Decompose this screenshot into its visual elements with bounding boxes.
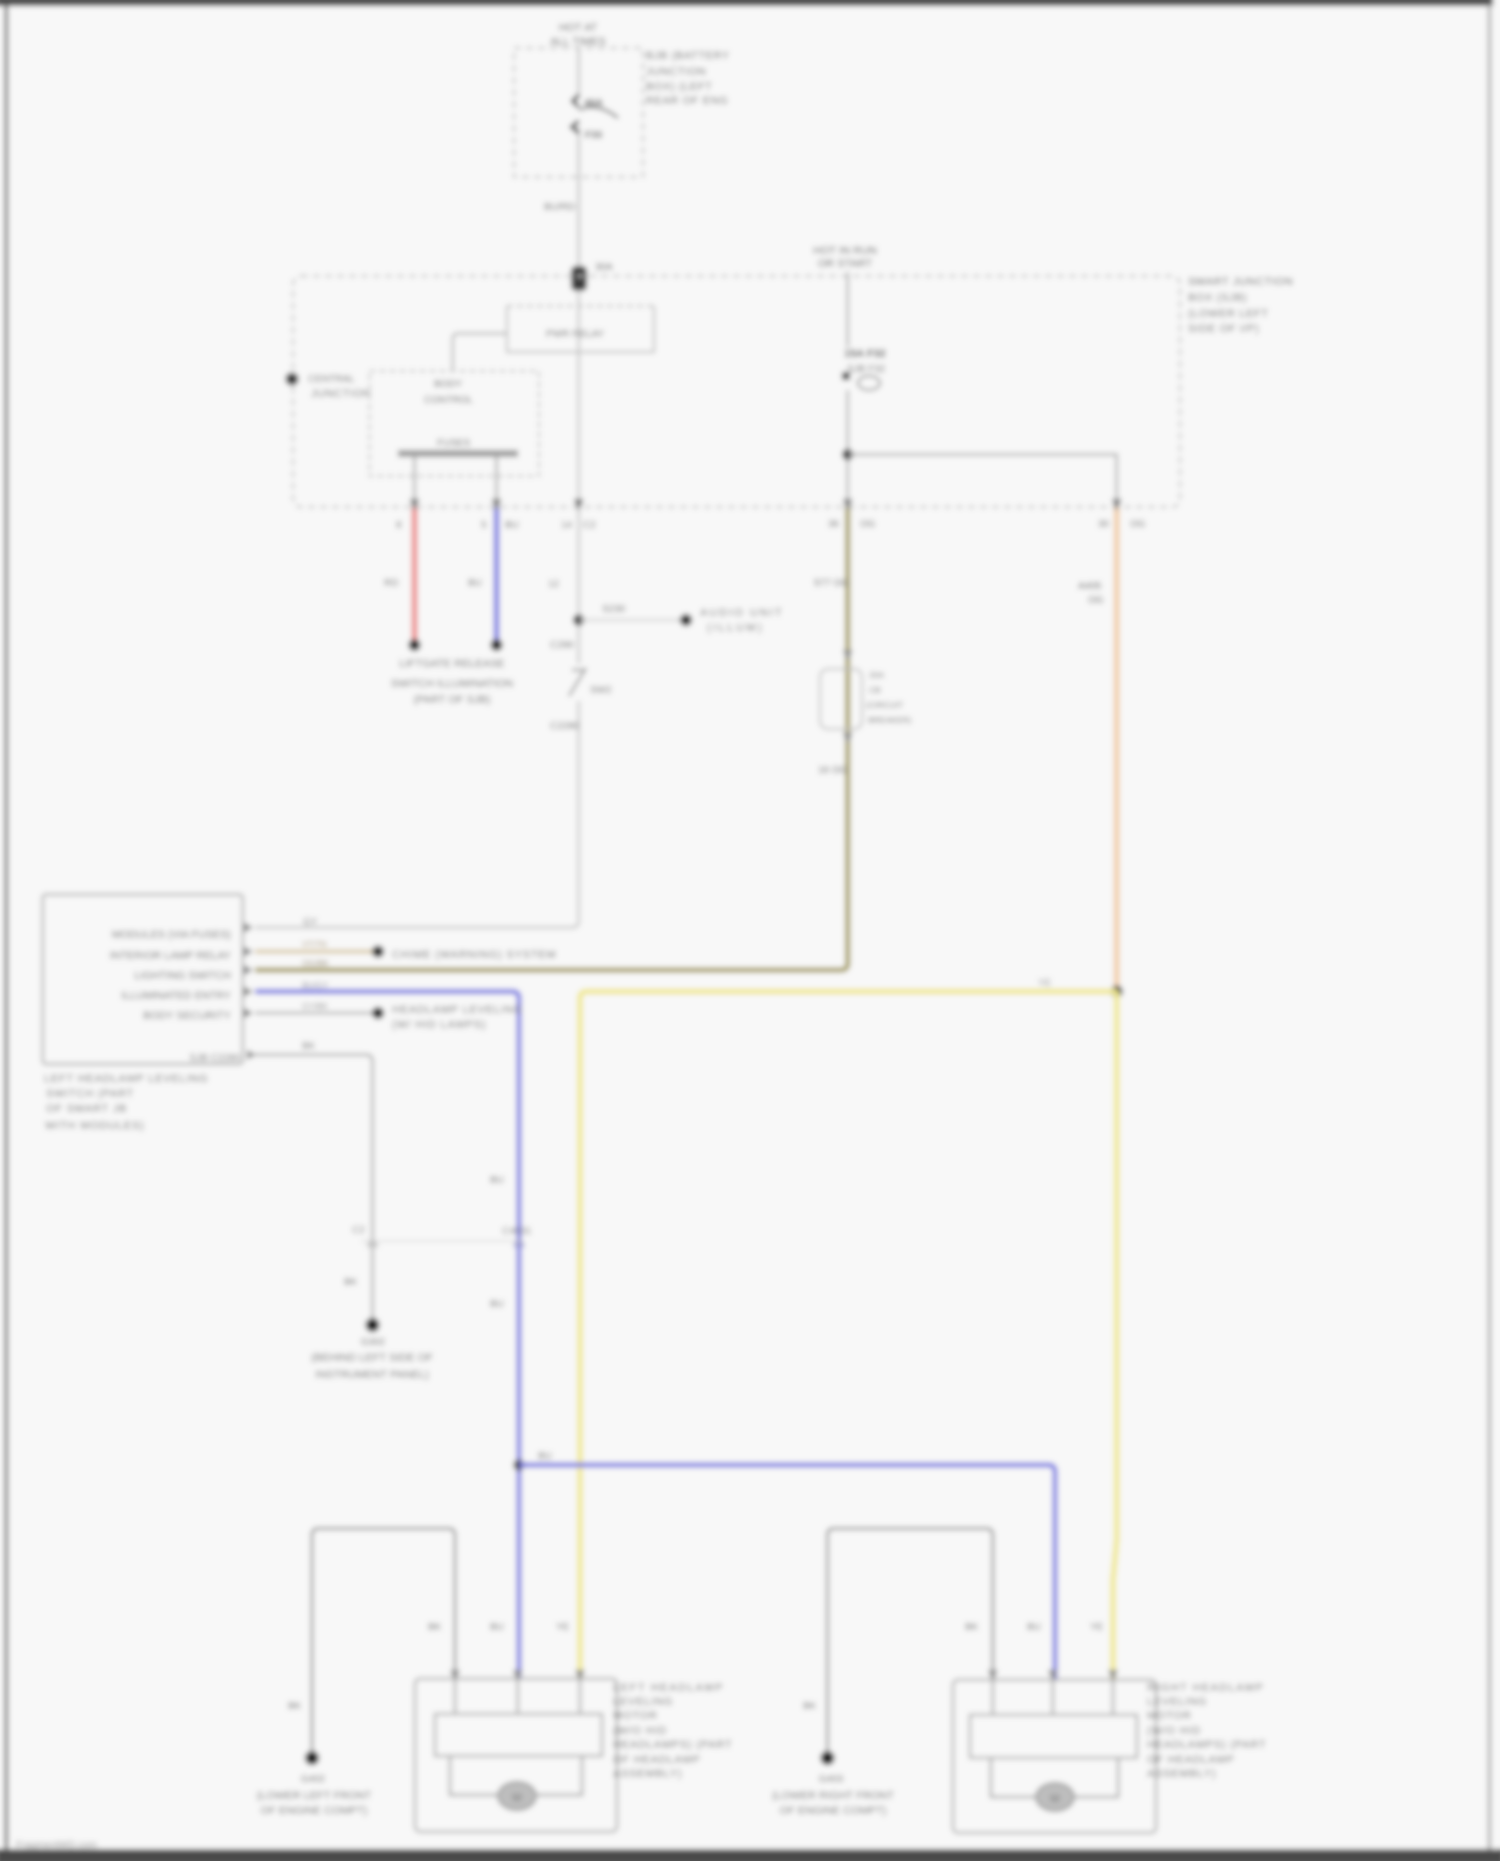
svg-text:(ILLUM): (ILLUM) [707,622,764,634]
svg-text:YE: YE [556,1622,570,1633]
svg-text:INSTRUMENT PANEL): INSTRUMENT PANEL) [315,1369,429,1381]
svg-text:OG/BK: OG/BK [302,958,329,968]
svg-text:C290: C290 [550,640,574,651]
svg-text:MOTOR: MOTOR [613,1710,658,1722]
svg-text:LIFTGATE RELEASE: LIFTGATE RELEASE [399,658,505,670]
svg-text:SIDE OF I/P): SIDE OF I/P) [1188,323,1259,335]
svg-text:BOX (SJB): BOX (SJB) [1188,292,1247,304]
svg-text:MODULES (VIA FUSES): MODULES (VIA FUSES) [112,929,231,941]
svg-text:SJB C2280: SJB C2280 [189,1053,240,1064]
svg-text:OG: OG [1088,595,1104,606]
svg-text:GY: GY [303,917,318,928]
svg-text:SWITCH ILLUMINATION: SWITCH ILLUMINATION [391,678,514,690]
svg-text:CHIME (WARNING) SYSTEM: CHIME (WARNING) SYSTEM [392,949,556,961]
svg-text:GY/BK: GY/BK [302,1001,328,1011]
svg-text:OG: OG [1130,519,1146,530]
svg-text:HOT IN RUN: HOT IN RUN [813,245,877,257]
svg-text:S230: S230 [602,604,626,615]
svg-text:FragmentWD.com: FragmentWD.com [16,1840,97,1851]
svg-text:OF ENGINE COMPT): OF ENGINE COMPT) [261,1805,368,1817]
svg-text:BU: BU [468,578,482,589]
svg-text:C4031: C4031 [502,1226,532,1237]
svg-text:JUNCTION: JUNCTION [646,66,706,78]
svg-text:LIGHTING SWITCH: LIGHTING SWITCH [134,970,231,982]
svg-text:OF HEADLAMP: OF HEADLAMP [613,1754,701,1766]
svg-text:YE: YE [1038,978,1052,989]
svg-text:JUNCTION: JUNCTION [311,388,371,400]
svg-text:OF HEADLAMP: OF HEADLAMP [1147,1754,1235,1766]
svg-text:30: 30 [1098,519,1110,530]
svg-text:C2: C2 [583,520,596,531]
svg-text:OF SMART JB: OF SMART JB [46,1103,127,1115]
svg-text:BU: BU [1027,1622,1041,1633]
svg-text:PWR RELAY: PWR RELAY [546,329,604,340]
svg-text:(BEHIND LEFT SIDE OF: (BEHIND LEFT SIDE OF [311,1352,433,1364]
svg-text:OG: OG [860,519,876,530]
svg-text:G403: G403 [819,1774,844,1785]
svg-text:SJB F32: SJB F32 [847,364,886,375]
svg-text:20A: 20A [869,670,884,680]
svg-text:M: M [1050,1793,1059,1805]
svg-text:BREAKER): BREAKER) [868,715,912,725]
svg-text:BU: BU [538,1451,552,1462]
svg-text:BK: BK [288,1701,302,1712]
svg-text:G402: G402 [301,1774,326,1785]
svg-text:G302: G302 [361,1337,386,1348]
svg-text:AUDIO UNIT: AUDIO UNIT [700,607,784,619]
svg-text:14: 14 [561,520,573,531]
svg-text:BK: BK [803,1701,817,1712]
svg-text:HOT AT: HOT AT [559,22,598,34]
svg-text:ALL TIMES: ALL TIMES [550,36,606,48]
svg-text:15A F32: 15A F32 [844,348,886,360]
svg-text:ASSEMBLY): ASSEMBLY) [613,1768,682,1780]
svg-text:BU/GY: BU/GY [302,980,329,990]
svg-text:A405: A405 [1078,581,1102,592]
svg-text:BU/RD: BU/RD [544,202,575,213]
svg-text:BU: BU [490,1299,504,1310]
svg-text:FUSES: FUSES [437,438,471,449]
svg-text:(W/O HID: (W/O HID [613,1725,667,1737]
svg-text:(W/O HID: (W/O HID [1147,1725,1201,1737]
svg-text:LEVELING: LEVELING [613,1696,673,1708]
svg-text:BJB (BATTERY: BJB (BATTERY [646,50,730,62]
svg-text:5: 5 [481,520,487,531]
svg-text:M: M [512,1792,521,1804]
svg-text:VT/TN: VT/TN [302,939,327,949]
svg-text:LEFT HEADLAMP: LEFT HEADLAMP [613,1682,724,1694]
svg-text:(CIRCUIT: (CIRCUIT [866,700,903,710]
svg-text:12: 12 [548,579,560,590]
svg-text:REAR OF ENG: REAR OF ENG [646,95,728,107]
svg-text:LEFT HEADLAMP LEVELING: LEFT HEADLAMP LEVELING [44,1073,209,1085]
svg-text:F33: F33 [585,130,603,141]
svg-text:CB: CB [869,685,881,695]
svg-text:ASSEMBLY): ASSEMBLY) [1147,1768,1216,1780]
svg-text:ILLUMINATED ENTRY: ILLUMINATED ENTRY [121,990,231,1002]
svg-text:HEADLAMPS) (PART: HEADLAMPS) (PART [613,1739,732,1751]
svg-text:BODY: BODY [434,379,463,390]
svg-text:40A: 40A [584,97,604,109]
svg-text:BU: BU [490,1622,504,1633]
svg-text:OF ENGINE COMPT): OF ENGINE COMPT) [780,1805,887,1817]
svg-text:OR START: OR START [818,258,873,270]
svg-text:BU: BU [490,1175,504,1186]
svg-text:BOX) (LEFT: BOX) (LEFT [646,81,713,93]
svg-text:30A: 30A [595,262,613,273]
svg-text:YE: YE [1090,1622,1104,1633]
svg-text:BK: BK [302,1041,316,1052]
svg-text:8: 8 [396,520,402,531]
svg-text:(LOWER LEFT: (LOWER LEFT [1188,308,1269,320]
svg-text:SW2: SW2 [590,685,612,696]
svg-text:RIGHT HEADLAMP: RIGHT HEADLAMP [1147,1682,1264,1694]
svg-text:MOTOR: MOTOR [1147,1710,1192,1722]
svg-text:RD: RD [384,578,398,589]
svg-text:INTERIOR LAMP RELAY: INTERIOR LAMP RELAY [110,950,231,962]
svg-text:HEADLAMP LEVELING: HEADLAMP LEVELING [392,1004,523,1016]
svg-text:(W/ HID LAMPS): (W/ HID LAMPS) [392,1019,486,1031]
svg-text:577 OG: 577 OG [814,578,849,589]
svg-text:LEVELING: LEVELING [1147,1696,1207,1708]
svg-text:16 OG: 16 OG [818,765,848,776]
svg-text:C2280: C2280 [550,721,580,732]
svg-text:(LOWER LEFT FRONT: (LOWER LEFT FRONT [257,1790,372,1802]
svg-text:HEADLAMPS) (PART: HEADLAMPS) (PART [1147,1739,1266,1751]
svg-text:CENTRAL: CENTRAL [308,374,355,385]
svg-text:WITH MODULES): WITH MODULES) [45,1120,145,1132]
svg-text:BU: BU [505,520,519,531]
svg-text:36: 36 [828,519,840,530]
svg-text:BK: BK [428,1622,442,1633]
svg-text:SWITCH (PART: SWITCH (PART [46,1088,134,1100]
svg-text:(LOWER RIGHT FRONT: (LOWER RIGHT FRONT [772,1790,894,1802]
svg-text:C2: C2 [352,1225,365,1236]
svg-text:(PART OF SJB): (PART OF SJB) [413,694,490,706]
svg-text:BODY SECURITY: BODY SECURITY [143,1010,231,1022]
svg-text:BK: BK [965,1622,979,1633]
svg-text:BK: BK [344,1277,358,1288]
svg-text:SMART JUNCTION: SMART JUNCTION [1188,276,1293,288]
svg-text:CONTROL: CONTROL [424,395,473,406]
